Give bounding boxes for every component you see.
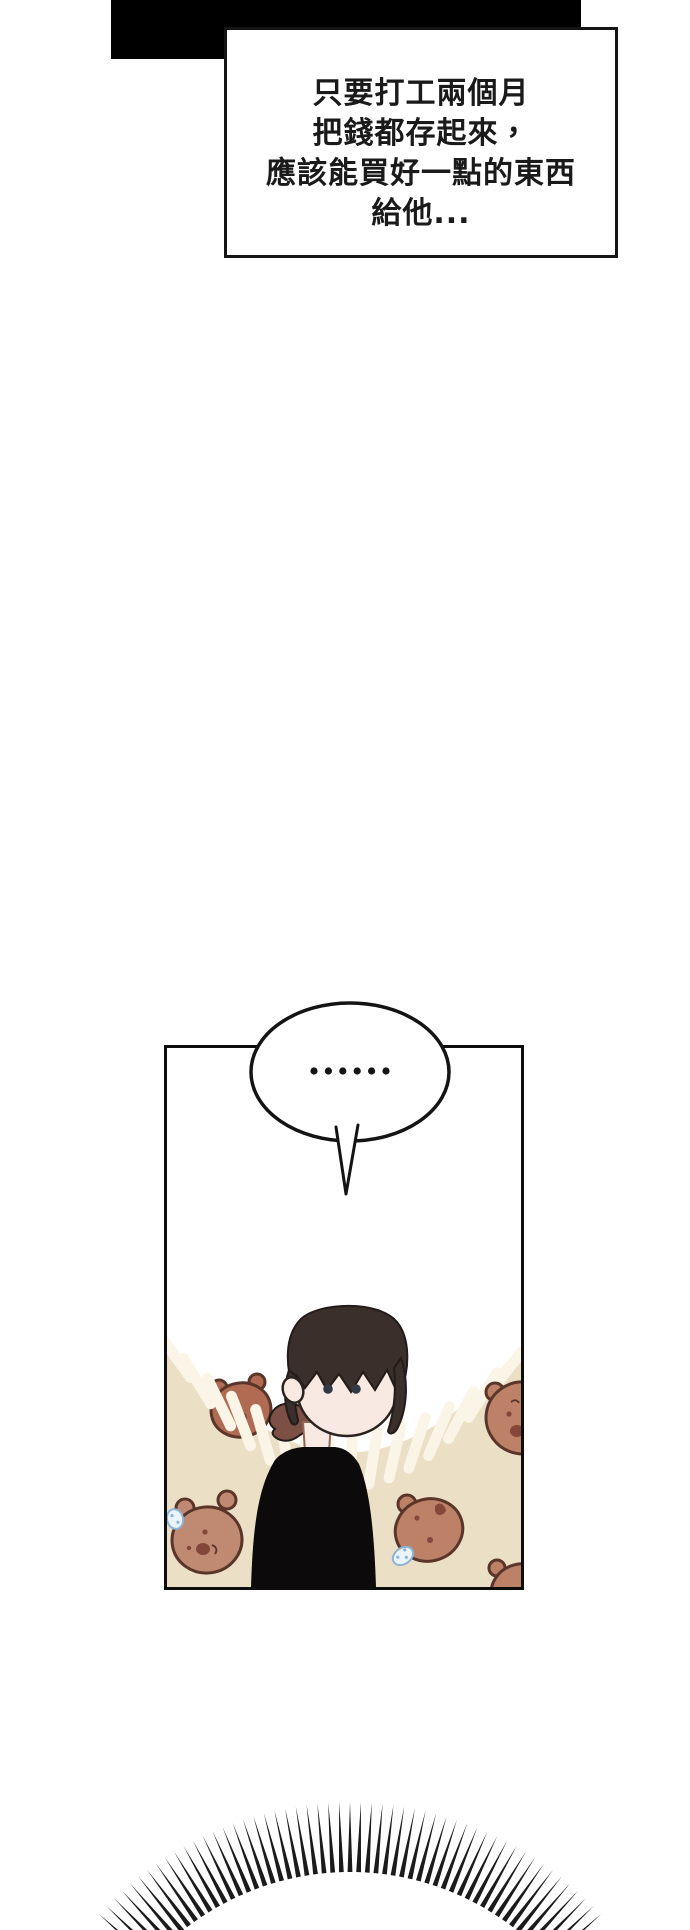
burst-spike — [373, 1804, 382, 1874]
burst-spike — [307, 1805, 318, 1875]
bear-eye — [414, 1515, 419, 1520]
impact-burst — [60, 1795, 630, 1930]
speech-bubble-tail — [336, 1125, 358, 1194]
narration-line: 把錢都存起來， — [227, 114, 615, 154]
narration-box: 只要打工兩個月 把錢都存起來， 應該能買好一點的東西 給他... — [224, 27, 618, 258]
bear-ear — [218, 1491, 236, 1509]
speech-bubble-body — [251, 1003, 449, 1141]
burst-spike — [147, 1870, 191, 1927]
comic-page: 只要打工兩個月 把錢都存起來， 應該能買好一點的東西 給他... — [0, 0, 690, 1930]
narration-line: 應該能買好一點的東西 — [227, 154, 615, 194]
ellipsis-dot — [382, 1067, 389, 1074]
burst-spike — [348, 1802, 353, 1872]
burst-spike — [156, 1863, 198, 1922]
narration-line: 只要打工兩個月 — [227, 74, 615, 114]
ellipsis-dot — [325, 1067, 332, 1074]
speech-bubble — [236, 998, 464, 1203]
burst-spikes — [99, 1802, 601, 1930]
burst-spike — [509, 1870, 553, 1927]
burst-spike — [495, 1857, 535, 1917]
bear-eye — [506, 1411, 511, 1416]
ellipsis-dot — [354, 1067, 361, 1074]
burst-spike — [416, 1813, 436, 1881]
bear-eye — [202, 1529, 207, 1534]
narration-line: 給他... — [227, 194, 615, 234]
burst-spike — [382, 1805, 393, 1875]
ellipsis-dot — [310, 1067, 317, 1074]
burst-spike — [165, 1857, 205, 1917]
burst-spike — [317, 1804, 326, 1874]
burst-spike — [502, 1863, 544, 1922]
burst-spike — [328, 1803, 335, 1873]
narration-text: 只要打工兩個月 把錢都存起來， 應該能買好一點的東西 給他... — [227, 74, 615, 234]
burst-spike — [356, 1802, 361, 1872]
bear-snout — [196, 1543, 210, 1555]
character-eye-right — [351, 1384, 361, 1394]
burst-spike — [264, 1813, 284, 1881]
burst-spike — [365, 1803, 372, 1873]
ellipsis-dot — [368, 1067, 375, 1074]
bear-nose — [427, 1537, 433, 1543]
character-eye-left — [323, 1384, 333, 1394]
bear-eye — [187, 1546, 191, 1550]
ellipsis-dot — [339, 1067, 346, 1074]
burst-spike — [339, 1802, 344, 1872]
